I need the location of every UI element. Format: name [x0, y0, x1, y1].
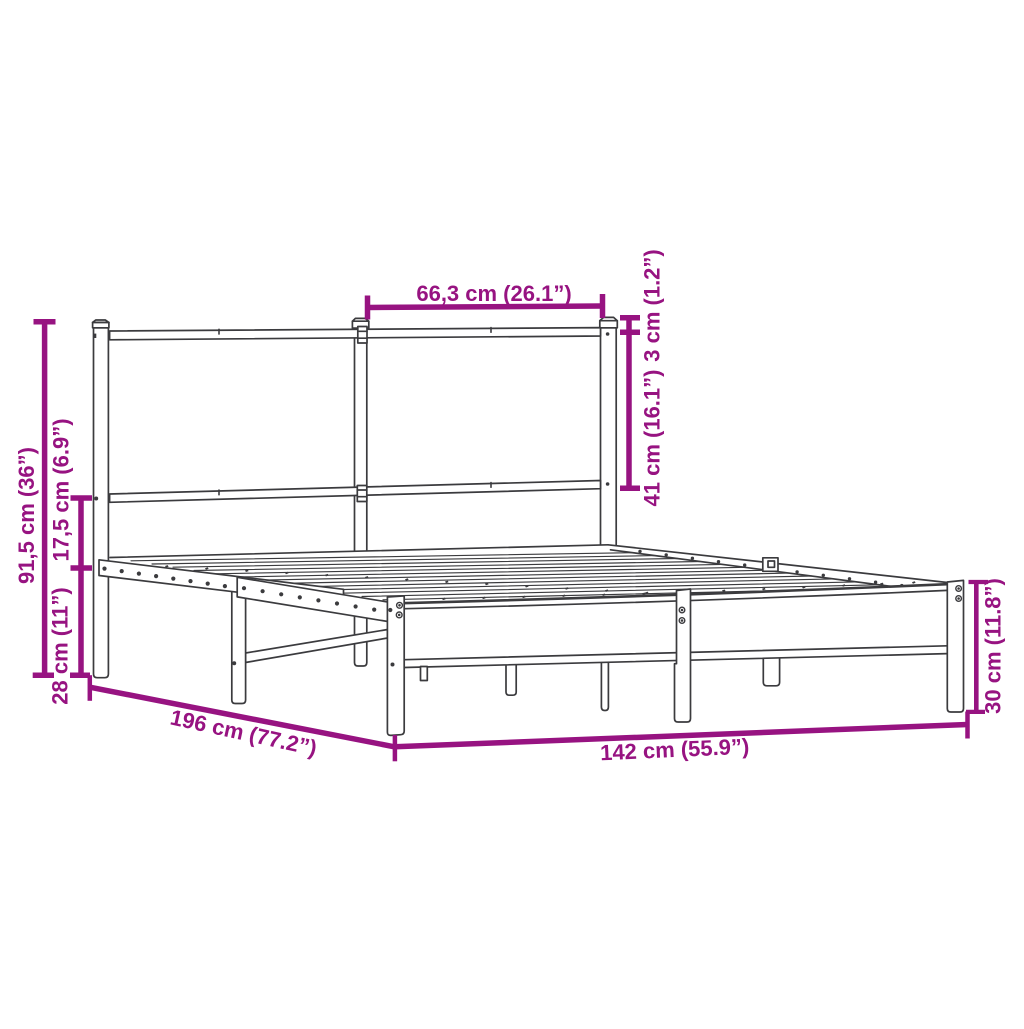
svg-text:41 cm (16.1”): 41 cm (16.1”): [640, 370, 665, 507]
svg-text:28 cm (11”): 28 cm (11”): [48, 587, 73, 704]
svg-text:91,5 cm (36”): 91,5 cm (36”): [14, 447, 39, 584]
svg-text:30 cm (11.8”): 30 cm (11.8”): [981, 578, 1006, 714]
svg-text:17,5 cm (6.9”): 17,5 cm (6.9”): [49, 418, 74, 561]
svg-text:3 cm (1.2”): 3 cm (1.2”): [640, 249, 665, 362]
svg-text:66,3 cm (26.1”): 66,3 cm (26.1”): [416, 281, 571, 306]
